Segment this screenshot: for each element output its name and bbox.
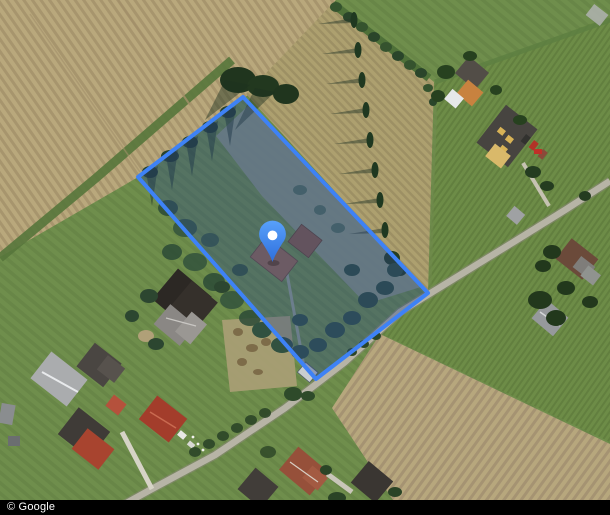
attribution-bar: © Google bbox=[0, 500, 610, 515]
map-view[interactable]: © Google bbox=[0, 0, 610, 515]
satellite-canvas[interactable] bbox=[0, 0, 610, 515]
attribution-text: © Google bbox=[0, 500, 610, 515]
